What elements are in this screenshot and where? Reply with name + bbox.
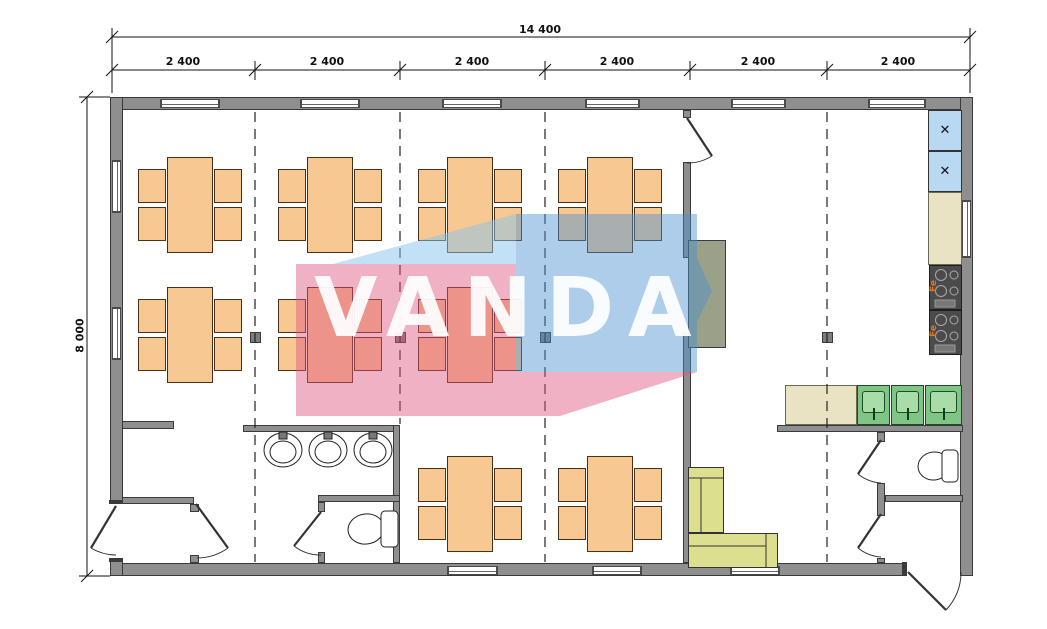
chair (278, 169, 306, 203)
dimension-module-1: 2 400 (158, 55, 208, 68)
gas-flame-symbol: Fe (924, 324, 944, 338)
refrigerator: ✕ (928, 151, 962, 192)
dining-table-group (138, 287, 242, 383)
dining-table-group (138, 157, 242, 253)
door-opening (906, 561, 960, 577)
chair (354, 207, 382, 241)
door-jamb (190, 555, 199, 563)
sink-tap (943, 408, 945, 420)
kitchen-sink (891, 385, 924, 425)
chair (214, 337, 242, 371)
door-opening (108, 504, 124, 558)
gas-flame-symbol: Fe (924, 279, 944, 293)
chair (214, 299, 242, 333)
sink-tap (873, 408, 875, 420)
toilet (346, 511, 398, 547)
sink-tap (907, 408, 909, 420)
dining-table-group (278, 157, 382, 253)
window (731, 99, 786, 108)
top-wall (110, 97, 973, 110)
chair (138, 207, 166, 241)
washbasin (354, 432, 392, 467)
chair (214, 207, 242, 241)
dining-table-group (418, 456, 522, 552)
floor-plan: ✕ ✕ Fe Fe (0, 0, 1047, 629)
washbasins (264, 432, 392, 467)
door-jamb (318, 502, 325, 512)
chair (634, 169, 662, 203)
column-marker (822, 332, 833, 343)
door-jamb (318, 552, 325, 563)
dining-table (307, 157, 353, 253)
chair (558, 506, 586, 540)
door-jamb (190, 504, 199, 512)
sink-counter (785, 385, 857, 425)
dimension-module-4: 2 400 (592, 55, 642, 68)
window (592, 566, 642, 575)
window (868, 99, 926, 108)
kitchen-sink (925, 385, 962, 425)
door-jamb (109, 558, 123, 562)
interior-wall (885, 495, 963, 502)
chair (138, 337, 166, 371)
door-swing (294, 512, 321, 555)
interior-wall (122, 421, 174, 429)
door-swing (908, 572, 961, 610)
window (442, 99, 502, 108)
chair (634, 468, 662, 502)
chair (418, 468, 446, 502)
chair (634, 506, 662, 540)
washbasin (309, 432, 347, 467)
door-jamb (877, 432, 885, 442)
window (585, 99, 640, 108)
window (112, 307, 121, 360)
chair (278, 207, 306, 241)
window (160, 99, 220, 108)
dimension-total-width: 14 400 (505, 23, 575, 36)
chair (138, 299, 166, 333)
watermark-text: VANDA (314, 268, 706, 350)
chair (494, 468, 522, 502)
chair (214, 169, 242, 203)
dimension-module-2: 2 400 (302, 55, 352, 68)
chair (138, 169, 166, 203)
door-swing (196, 504, 228, 558)
dining-table (167, 287, 213, 383)
interior-wall (683, 110, 691, 118)
bottom-wall (110, 563, 973, 576)
refrigerator-mark: ✕ (940, 164, 951, 179)
window (962, 200, 971, 258)
refrigerator-mark: ✕ (940, 123, 951, 138)
interior-wall (393, 425, 400, 563)
interior-wall (777, 425, 963, 432)
washbasin (264, 432, 302, 467)
door-swing (858, 440, 881, 483)
dining-table (587, 456, 633, 552)
chair (418, 506, 446, 540)
column-marker (250, 332, 261, 343)
door-jamb (877, 558, 885, 563)
door-swing (687, 118, 712, 163)
kitchen-counter (928, 192, 962, 265)
sofa (688, 467, 724, 533)
door-swing (858, 514, 881, 557)
dining-table (167, 157, 213, 253)
interior-wall (122, 497, 194, 504)
dining-table (447, 456, 493, 552)
door-jamb (902, 562, 907, 576)
interior-wall (318, 495, 400, 502)
interior-wall (877, 483, 885, 516)
chair (558, 169, 586, 203)
dimension-module-6: 2 400 (873, 55, 923, 68)
chair (418, 169, 446, 203)
sofa (688, 533, 778, 568)
dimension-module-3: 2 400 (447, 55, 497, 68)
chair (354, 169, 382, 203)
window (300, 99, 360, 108)
dimension-module-5: 2 400 (733, 55, 783, 68)
window (112, 160, 121, 213)
refrigerator: ✕ (928, 110, 962, 151)
chair (494, 169, 522, 203)
door-jamb (109, 500, 123, 504)
dimension-height: 8 000 (74, 311, 87, 361)
dining-table-group (558, 456, 662, 552)
kitchen-sink (857, 385, 890, 425)
window (447, 566, 498, 575)
interior-wall (243, 425, 400, 432)
toilet (916, 450, 958, 482)
chair (494, 506, 522, 540)
chair (558, 468, 586, 502)
